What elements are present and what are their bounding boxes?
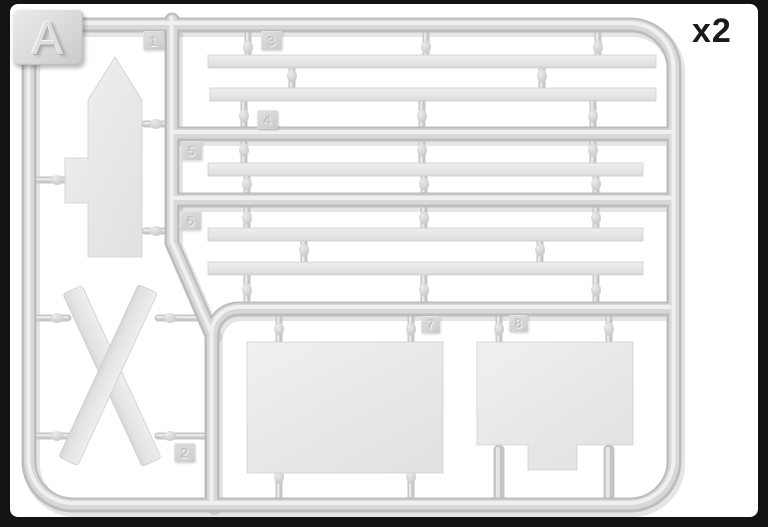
plastic-parts — [59, 55, 656, 473]
part-plank-strips — [208, 55, 656, 275]
instruction-sheet: A x2 1 3 4 5 6 2 7 8 — [0, 0, 768, 527]
part-number-tag-5: 5 — [181, 141, 202, 160]
part-number-tag-1: 1 — [143, 31, 164, 50]
part-cross-braces — [59, 284, 162, 466]
part-tower-shape — [65, 57, 142, 257]
sprue-letter-tab: A — [12, 9, 83, 65]
part-number-tag-8: 8 — [509, 315, 528, 332]
sprue-letter: A — [32, 14, 63, 61]
part-number-tag-7: 7 — [421, 316, 440, 333]
part-number-tag-3: 3 — [261, 31, 282, 50]
part-panel-left — [247, 342, 443, 473]
part-number-tag-2: 2 — [174, 443, 195, 462]
sprue-diagram — [0, 0, 768, 527]
part-number-tag-4: 4 — [257, 110, 278, 129]
part-number-tag-6: 6 — [180, 211, 201, 230]
sprue-quantity-label: x2 — [692, 12, 752, 51]
